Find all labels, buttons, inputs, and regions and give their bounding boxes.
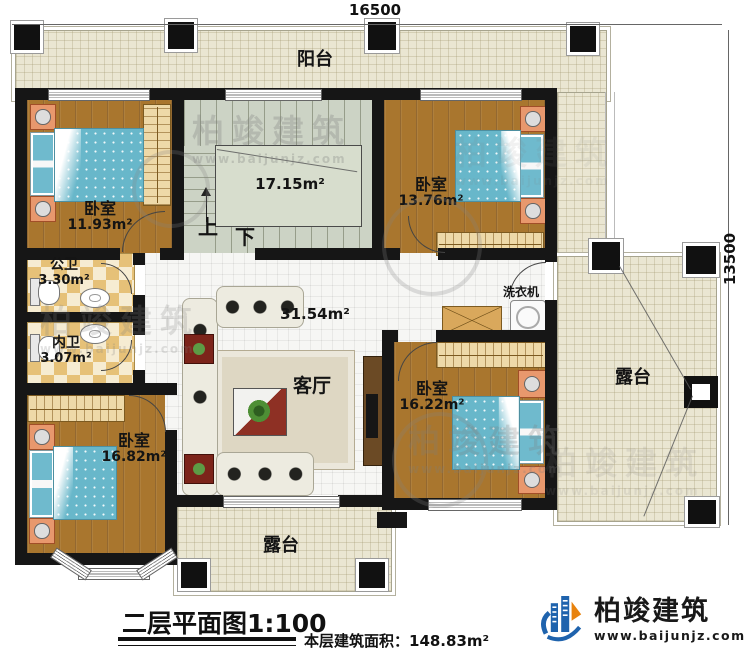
nightstand <box>518 466 546 494</box>
label-bedroom-right: 卧室 16.22m² <box>392 380 472 414</box>
wall-bedroomr-left <box>382 330 394 510</box>
brand-building-icon <box>538 592 586 648</box>
label-hall-area: 31.54m² <box>275 306 355 323</box>
column <box>570 26 596 52</box>
wall-stair-bottom <box>255 248 372 260</box>
label-terrace-bottom: 露台 <box>248 536 314 556</box>
wall-bedroombl-right-a <box>165 383 177 395</box>
column <box>592 242 620 270</box>
bed-pillows <box>30 132 56 196</box>
nightstand <box>29 424 55 450</box>
column <box>181 562 207 588</box>
title-underline-thin <box>118 645 296 646</box>
dimension-line-top <box>12 24 722 25</box>
wall-terrace-corner <box>377 512 407 528</box>
column <box>359 562 385 588</box>
brand-logo: 柏竣建筑 www.baijunjz.com <box>538 592 746 648</box>
wall-bedroomr-top-b <box>436 330 557 342</box>
label-bedroom-top-right: 卧室 13.76m² <box>388 176 474 210</box>
label-stairs-up: 上 <box>194 216 222 238</box>
nightstand <box>30 104 56 130</box>
wall-wc-right-c <box>133 370 145 383</box>
brand-text: 柏竣建筑 www.baijunjz.com <box>594 598 746 643</box>
column <box>168 22 194 49</box>
nightstand <box>29 518 55 544</box>
wall-bedroomtr-bottom-b <box>438 248 557 260</box>
tv <box>366 394 378 438</box>
label-terrace-right: 露台 <box>600 368 666 388</box>
wall-right-upper <box>545 88 557 262</box>
window <box>428 499 522 511</box>
plant <box>248 400 270 422</box>
brand-name: 柏竣建筑 <box>594 598 746 625</box>
side-walkway-floor <box>557 92 607 258</box>
wardrobe <box>143 104 171 206</box>
wall-wc-bottom <box>15 383 177 395</box>
side-table <box>184 454 214 484</box>
column <box>14 24 40 50</box>
wall-wc-right-b <box>133 295 145 335</box>
column <box>686 246 716 274</box>
plan-title: 二层平面图1:100 <box>122 604 327 640</box>
column <box>688 500 716 524</box>
wall-hall-bottom-b <box>338 495 390 507</box>
label-living: 客厅 <box>284 376 340 397</box>
bed-pillows <box>516 400 544 464</box>
label-washer: 洗衣机 <box>494 286 548 299</box>
wall-stair-left <box>172 88 184 260</box>
label-balcony: 阳台 <box>265 50 365 70</box>
label-stairs-down: 下 <box>231 226 259 248</box>
label-bedroom-top-left: 卧室 11.93m² <box>55 200 145 234</box>
wardrobe <box>27 395 125 422</box>
stair-treads-top <box>184 100 372 146</box>
wall-wc-right-a <box>133 253 145 265</box>
bed-pillows <box>29 450 55 518</box>
stair-arrow-icon <box>201 182 211 196</box>
label-inner-wc: 内卫 3.07m² <box>36 336 96 366</box>
bed-pillows <box>518 134 544 198</box>
wall-wc-divider <box>15 312 133 322</box>
wall-left <box>15 88 27 565</box>
dimension-right: 13500 <box>721 229 739 289</box>
nightstand <box>30 196 56 222</box>
window <box>48 89 150 101</box>
nightstand <box>520 106 546 132</box>
sofa <box>216 452 314 496</box>
floor-area-text: 本层建筑面积：148.83m² <box>304 630 489 651</box>
window <box>420 89 522 101</box>
label-public-wc: 公卫 3.30m² <box>34 258 94 288</box>
side-table <box>184 334 214 364</box>
label-bedroom-bottom-left: 卧室 16.82m² <box>94 432 174 466</box>
wall-hall-bottom-a <box>172 495 223 507</box>
column <box>368 22 396 50</box>
side-walkway-railing <box>605 92 615 256</box>
nightstand <box>520 198 546 224</box>
wall-bedroomtr-bottom-a <box>372 248 400 260</box>
title-underline-thick <box>118 637 296 641</box>
sliding-door <box>223 496 340 508</box>
dimension-top: 16500 <box>300 1 450 19</box>
label-stairs-area: 17.15m² <box>245 176 335 193</box>
wardrobe <box>436 342 546 368</box>
wall-stair-right <box>372 88 384 260</box>
brand-site: www.baijunjz.com <box>594 628 746 643</box>
window <box>225 89 322 101</box>
bed <box>54 128 144 202</box>
floor-plan: 阳台 卧室 11.93m² 17.15m² 上 下 卧室 13.76m² 公卫 … <box>0 0 750 658</box>
nightstand <box>518 370 546 398</box>
